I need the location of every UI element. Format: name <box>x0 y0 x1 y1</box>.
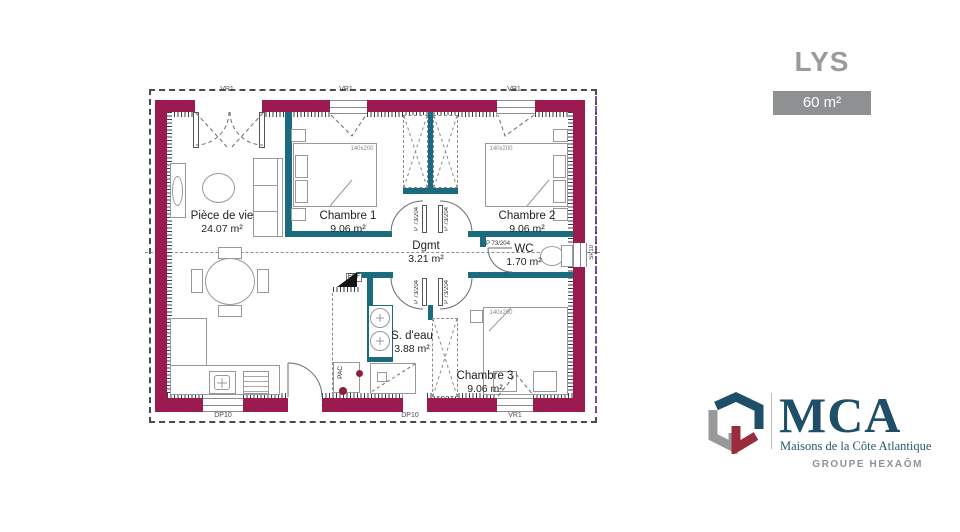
cube-bottom-face <box>736 426 756 448</box>
shutter-label: VR1 <box>508 412 522 419</box>
partition-wall <box>468 272 573 278</box>
pac-unit-label: PAC <box>337 366 344 379</box>
insulation-hatch <box>568 112 573 243</box>
mca-cube-logo-icon <box>704 392 768 454</box>
chair <box>218 305 242 317</box>
partition-wall <box>357 272 393 278</box>
nightstand <box>291 129 306 142</box>
window-opening <box>497 100 535 114</box>
cube-left-face <box>713 410 733 447</box>
chair <box>218 247 242 259</box>
service-door-opening <box>403 398 427 412</box>
pac-connection-dot <box>356 370 363 377</box>
sofa <box>253 158 283 237</box>
room-area: 3.88 m² <box>391 343 433 356</box>
toilet-tank <box>561 245 573 267</box>
door-size-label: P 73/204 <box>414 207 420 231</box>
room-name: Pièce de vie <box>191 210 254 223</box>
insulation-hatch <box>262 112 330 117</box>
room-area: 9.06 m² <box>457 383 514 396</box>
room-label-chambre-1: Chambre 1 9.06 m² <box>320 210 377 236</box>
exterior-wall <box>573 267 585 412</box>
room-label-dgmt: Dgmt 3.21 m² <box>408 240 444 266</box>
shutter-label: VR1 <box>507 86 521 93</box>
insulation-hatch <box>568 267 573 393</box>
door-size-label: P 73/204 <box>444 207 450 231</box>
exterior-wall <box>322 398 403 412</box>
dining-table <box>205 258 255 305</box>
model-name-title: LYS <box>772 46 872 78</box>
shutter-label: VR1 <box>220 86 234 93</box>
room-name: Dgmt <box>408 240 444 253</box>
closet <box>403 115 428 188</box>
room-label-chambre-3: Chambre 3 9.06 m² <box>457 370 514 396</box>
exterior-wall <box>427 398 497 412</box>
opening-label: SP10 <box>589 245 595 260</box>
logo-divider <box>771 393 772 449</box>
window-opening <box>497 398 533 412</box>
side-table <box>202 173 235 203</box>
room-area: 3.21 m² <box>408 253 444 266</box>
pillow <box>553 180 566 203</box>
nightstand <box>291 208 306 221</box>
closet <box>433 115 458 188</box>
exterior-wall <box>155 100 167 412</box>
room-name: S. d'eau <box>391 330 433 343</box>
pillow <box>533 371 557 392</box>
pac-connection-dot <box>339 387 347 395</box>
door-jamb <box>422 205 427 233</box>
washbasin <box>370 331 390 351</box>
entry-door-opening <box>195 100 262 114</box>
room-area: 9.06 m² <box>499 223 556 236</box>
room-area: 24.07 m² <box>191 223 254 236</box>
logo-subtitle: Maisons de la Côte Atlantique <box>780 439 931 454</box>
door-jamb <box>193 112 199 148</box>
tv-screen <box>172 176 183 206</box>
sofa-cushion-line <box>254 211 277 212</box>
room-name: WC <box>506 243 542 256</box>
terrace-door-opening <box>288 398 322 412</box>
chair <box>191 269 203 293</box>
room-label-piece-de-vie: Pièce de vie 24.07 m² <box>191 210 254 236</box>
insulation-hatch <box>333 287 360 292</box>
pillow <box>295 155 308 178</box>
pillow <box>295 180 308 203</box>
bed-size-label: 140x200 <box>350 146 373 152</box>
sofa-backrest-line <box>277 159 278 236</box>
cube-top-face <box>716 397 759 429</box>
edf-panel-label: EDF <box>346 273 362 282</box>
right-boundary-dashed-line <box>595 96 597 412</box>
chair <box>257 269 269 293</box>
exterior-wall <box>243 398 288 412</box>
door-jamb <box>438 205 443 233</box>
room-name: Chambre 3 <box>457 370 514 383</box>
bed-size-label: 140x200 <box>489 146 512 152</box>
area-badge: 60 m² <box>773 91 871 115</box>
kitchen-sink-bowl <box>214 375 230 390</box>
door-jamb <box>438 278 443 306</box>
room-area: 9.06 m² <box>320 223 377 236</box>
closet <box>432 318 458 397</box>
pillow <box>553 155 566 178</box>
page: EDF PAC <box>0 0 960 532</box>
kitchen-drainer <box>243 371 269 394</box>
nightstand <box>553 129 568 142</box>
bed-size-label: 140x200 <box>489 310 512 316</box>
room-label-wc: WC 1.70 m² <box>506 243 542 269</box>
room-name: Chambre 2 <box>499 210 556 223</box>
window-opening <box>203 398 243 412</box>
door-jamb <box>422 278 427 306</box>
door-size-label: P 73/204 <box>486 241 510 247</box>
door-size-label: P 73/204 <box>414 280 420 304</box>
opening-label: DP10 <box>401 412 419 419</box>
nightstand <box>470 310 483 323</box>
window-opening <box>573 243 587 267</box>
partition-wall <box>403 188 458 194</box>
logo-text: MCA <box>779 392 901 438</box>
opening-label: DP10 <box>214 412 232 419</box>
shower-drain <box>377 372 387 382</box>
door-size-label: P 73/204 <box>444 280 450 304</box>
exterior-wall <box>573 100 585 243</box>
room-area: 1.70 m² <box>506 256 542 269</box>
washbasin <box>370 308 390 328</box>
room-label-chambre-2: Chambre 2 9.06 m² <box>499 210 556 236</box>
room-label-s-deau: S. d'eau 3.88 m² <box>391 330 433 356</box>
window-opening <box>330 100 367 114</box>
shutter-label: VR1 <box>339 86 353 93</box>
group-label: GROUPE HEXAÔM <box>778 459 923 470</box>
room-name: Chambre 1 <box>320 210 377 223</box>
sofa-cushion-line <box>254 185 277 186</box>
door-jamb <box>259 112 265 148</box>
